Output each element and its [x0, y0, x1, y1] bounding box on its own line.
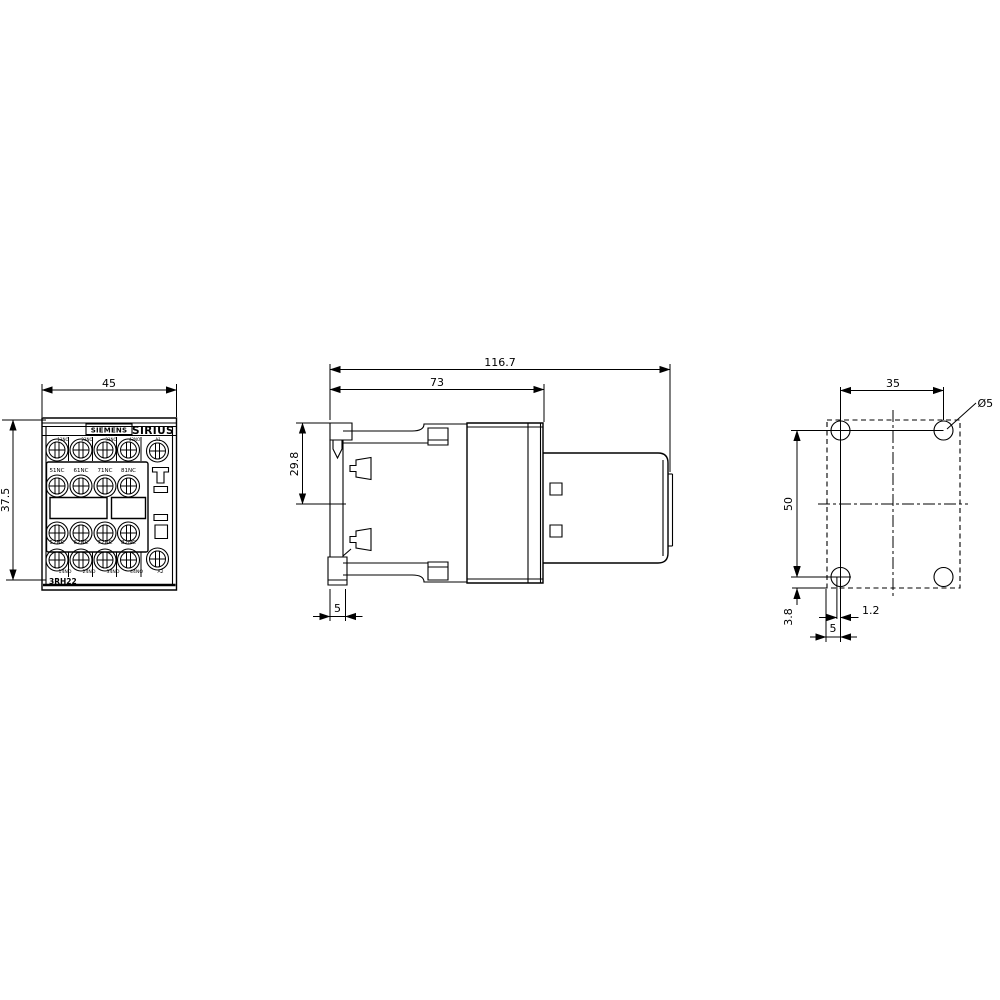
side-front-depth-dimension: 73	[330, 376, 544, 422]
svg-text:14NO: 14NO	[59, 569, 72, 575]
screw-terminal-icon	[70, 475, 92, 497]
dimensional-drawing: 45 37.5 SIEMENS SIRIUS 13NO 23NO 33NO 43…	[0, 0, 1000, 1000]
slot-upper	[154, 487, 168, 493]
plan-height-dimension: 50	[782, 431, 797, 578]
brand-label: SIEMENS	[91, 426, 127, 434]
screw-terminal-icon	[147, 440, 169, 462]
screw-terminal-icon	[147, 548, 169, 570]
hole-diameter-callout: Ø5	[947, 397, 993, 429]
label-window-left	[50, 498, 107, 519]
side-front-depth-label: 73	[430, 376, 444, 389]
release-lug-upper	[350, 458, 371, 480]
slot-square	[155, 525, 168, 539]
plan-bottom-offset-dimension: 3.8	[782, 560, 797, 626]
screw-terminal-icon	[70, 549, 92, 571]
rear-block	[543, 453, 673, 563]
bottom-terminal-labels: 14NO 24NO 34NO 44NO A2	[59, 569, 164, 575]
accessory-column	[153, 468, 169, 539]
front-view: 45 37.5 SIEMENS SIRIUS 13NO 23NO 33NO 43…	[0, 377, 177, 590]
svg-text:62NC: 62NC	[74, 540, 89, 546]
plan-height-label: 50	[782, 497, 795, 511]
hole-diameter-label: Ø5	[978, 397, 994, 410]
series-label: SIRIUS	[132, 425, 174, 437]
svg-text:52NC: 52NC	[50, 540, 65, 546]
release-lug-lower	[350, 529, 371, 551]
screw-terminal-icon	[118, 549, 140, 571]
screw-terminal-icon	[118, 439, 140, 461]
model-label: 3RH22	[49, 577, 77, 586]
label-window-right	[112, 498, 146, 519]
connecting-bars	[343, 424, 467, 582]
plan-bottom-offset-label: 3.8	[782, 608, 795, 626]
plan-width-dimension: 35	[841, 377, 944, 391]
latch-tab	[153, 468, 169, 484]
svg-text:34NO: 34NO	[107, 569, 120, 575]
svg-text:72NC: 72NC	[98, 540, 113, 546]
svg-text:A2: A2	[157, 569, 163, 575]
side-rail-label: 5	[334, 602, 341, 615]
screw-terminal-icon	[94, 439, 116, 461]
screw-terminal-icon	[70, 439, 92, 461]
front-height-label: 37.5	[0, 488, 12, 513]
mounting-hole	[934, 568, 953, 587]
svg-text:44NO: 44NO	[130, 569, 143, 575]
screw-terminal-icon	[46, 439, 68, 461]
screw-terminal-icon	[46, 475, 68, 497]
svg-text:71NC: 71NC	[98, 468, 113, 474]
plan-hole-offset-label: 1.2	[862, 604, 880, 617]
plan-edge-offset-dimension: 5	[810, 622, 857, 637]
side-total-depth-label: 116.7	[484, 356, 516, 369]
plan-hole-offset-dimension: 1.2	[819, 604, 880, 618]
technical-drawing-page: 45 37.5 SIEMENS SIRIUS 13NO 23NO 33NO 43…	[0, 0, 1000, 1000]
screw-terminal-icon	[94, 475, 116, 497]
svg-text:51NC: 51NC	[50, 468, 65, 474]
vent-slot-upper	[550, 483, 562, 495]
svg-text:61NC: 61NC	[74, 468, 89, 474]
front-width-dimension: 45	[42, 377, 177, 417]
screw-terminal-icon	[118, 475, 140, 497]
nc-upper-screws	[46, 475, 140, 497]
screw-terminal-icon	[46, 549, 68, 571]
side-upper-dimension: 29.8	[288, 423, 346, 504]
main-body	[467, 423, 543, 583]
front-height-dimension: 37.5	[0, 420, 46, 580]
screw-terminal-icon	[94, 549, 116, 571]
side-rail-dimension: 5	[313, 589, 363, 621]
slot-lower	[154, 515, 168, 521]
svg-text:81NC: 81NC	[121, 468, 136, 474]
side-view: 116.7 73 29.8 5	[288, 356, 673, 621]
svg-text:82NC: 82NC	[121, 540, 136, 546]
side-total-depth-dimension: 116.7	[330, 356, 670, 472]
svg-text:24NO: 24NO	[83, 569, 96, 575]
front-width-label: 45	[102, 377, 116, 390]
nc-lower-labels: 52NC 62NC 72NC 82NC	[50, 540, 137, 546]
plan-edge-offset-label: 5	[830, 622, 837, 635]
vent-slot-lower	[550, 525, 562, 537]
drill-plan: 35 Ø5 50 3.8 1.2 5	[782, 377, 993, 642]
nc-upper-labels: 51NC 61NC 71NC 81NC	[50, 468, 137, 474]
side-upper-label: 29.8	[288, 452, 301, 477]
plan-width-label: 35	[886, 377, 900, 390]
